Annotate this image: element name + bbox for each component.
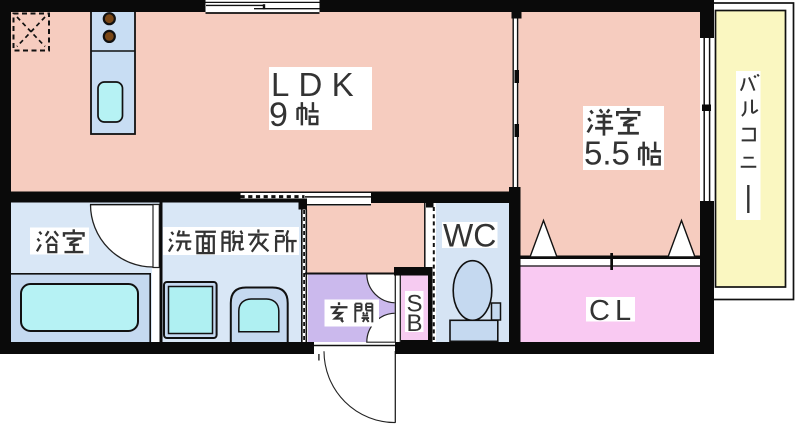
svg-text:5.5: 5.5 — [584, 134, 630, 171]
svg-text:9: 9 — [269, 96, 288, 134]
svg-text:WC: WC — [443, 218, 496, 254]
svg-text:CL: CL — [589, 295, 636, 327]
svg-text:B: B — [407, 310, 423, 337]
